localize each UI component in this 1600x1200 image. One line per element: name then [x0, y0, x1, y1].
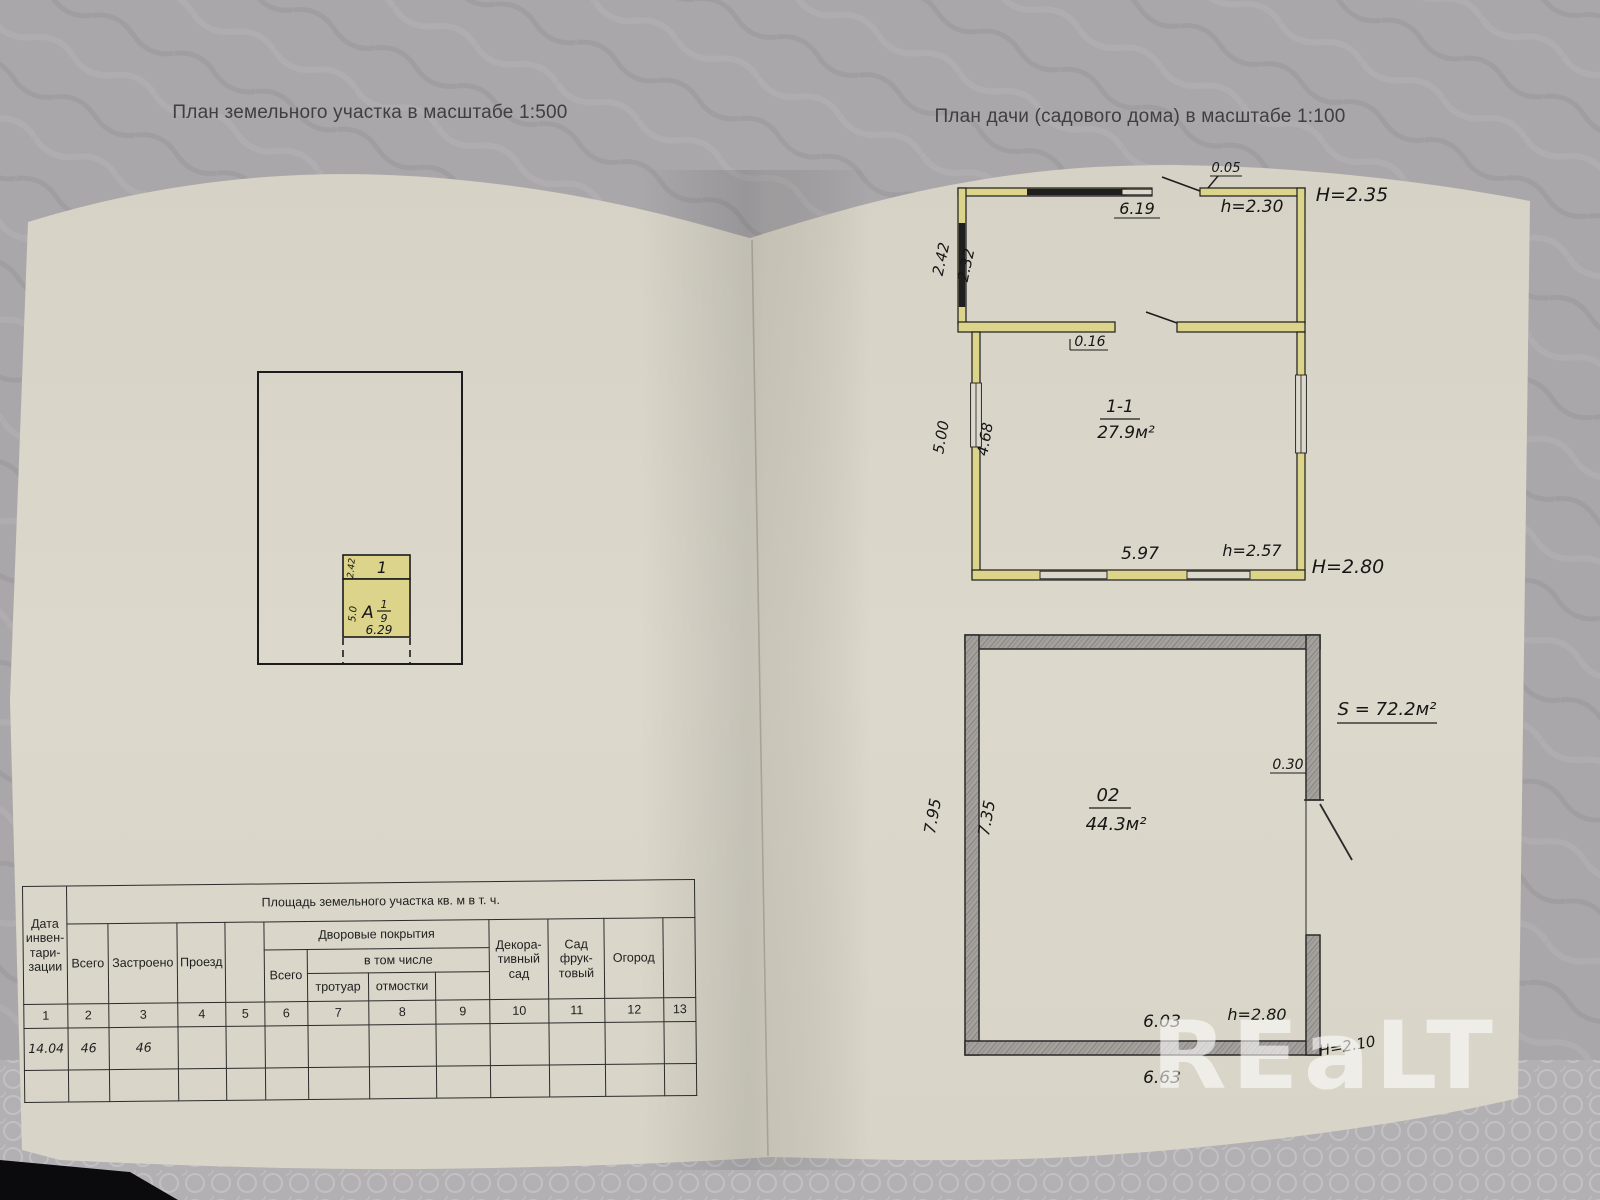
header-garden: Огород: [604, 918, 664, 999]
dim-bottom-width: 5.97: [1121, 544, 1159, 564]
inventory-table-wrap: Дата инвен- тари- зации Площадь земельно…: [22, 886, 695, 1103]
cell-empty: [549, 1064, 605, 1097]
g-dim-side-out: 7.95: [920, 797, 945, 835]
dim-top-width: 6.19: [1119, 199, 1155, 218]
col-num: 3: [109, 1003, 178, 1028]
data-row: 14.04 46 46: [24, 1021, 697, 1070]
header-drive: Проезд: [177, 922, 226, 1002]
header-decorative: Декора- тивный сад: [489, 919, 549, 1000]
header-including: в том числе: [307, 948, 489, 974]
wall-top-right: [1200, 188, 1305, 196]
cell-empty: [369, 1024, 436, 1067]
offset-leader: [1208, 176, 1218, 188]
g-room-area: 44.3м²: [1086, 814, 1147, 835]
room-area: 27.9м²: [1097, 423, 1155, 443]
dim-veranda-out: 2.42: [929, 241, 954, 277]
top-wall-shaded-segment: [1027, 189, 1127, 195]
dim-H-veranda: H=2.35: [1316, 184, 1389, 206]
header-apron: отмостки: [368, 972, 435, 1001]
cell-empty: [490, 1023, 549, 1066]
cell-empty: [68, 1070, 109, 1102]
cell-empty: [265, 1026, 308, 1068]
cell-empty: [24, 1070, 68, 1102]
cell-empty: [109, 1069, 178, 1102]
col-num: 7: [308, 1001, 369, 1026]
room-right-wall: [1297, 332, 1305, 578]
window-bottom-wall-1: [1040, 571, 1107, 579]
header-built: Застроено: [108, 923, 178, 1004]
cell-empty: [605, 1064, 664, 1097]
room-bottom-wall: [972, 570, 1305, 580]
col-num: 12: [605, 998, 664, 1023]
cell-empty: [265, 1068, 308, 1100]
g-total-area: S = 72.2м²: [1338, 699, 1437, 720]
cell-empty: [549, 1022, 605, 1065]
realt-watermark: REaLT: [1151, 1002, 1498, 1111]
building-litera-label: А: [361, 603, 374, 623]
dim-offset: 0.05: [1212, 161, 1241, 176]
header-col9-empty: [435, 972, 489, 1001]
veranda-right-wall: [1297, 188, 1305, 324]
g-top-wall: [965, 635, 1320, 649]
dim-inner-door: 0.16: [1074, 334, 1105, 350]
inventory-table: Дата инвен- тари- зации Площадь земельно…: [22, 879, 697, 1103]
cell-empty: [178, 1026, 226, 1069]
col-num: 5: [226, 1002, 265, 1026]
header-yard-total: Всего: [264, 950, 308, 1002]
building-depth-label: 5.0: [347, 606, 359, 623]
g-inner-outline: [979, 649, 1306, 1041]
cell-empty: [308, 1067, 369, 1100]
g-door-swing: [1320, 804, 1352, 860]
building-number-label: 1: [377, 558, 387, 577]
cell-empty: [605, 1022, 664, 1065]
cell-empty: [490, 1065, 549, 1098]
dim-h-room: h=2.57: [1222, 541, 1282, 560]
col-num: 9: [436, 1000, 490, 1025]
header-orchard: Сад фрук- товый: [548, 918, 605, 999]
divider-wall-right: [1177, 322, 1305, 332]
cell-date: 14.04: [24, 1028, 68, 1070]
cell-empty: [664, 1021, 697, 1063]
header-date: Дата инвен- тари- зации: [23, 886, 68, 1004]
col-num: 6: [265, 1002, 308, 1026]
cell-empty: [664, 1063, 696, 1095]
window-bottom-wall-2: [1187, 571, 1250, 579]
g-room-number: 02: [1097, 785, 1120, 806]
header-total: Всего: [67, 924, 109, 1004]
col-num: 4: [178, 1002, 226, 1027]
divider-wall-left: [958, 322, 1115, 332]
window-top-wall: [1122, 189, 1152, 195]
header-sidewalk: тротуар: [307, 973, 368, 1002]
header-col5-empty: [225, 922, 265, 1002]
cell-empty: [436, 1024, 490, 1067]
room-number: 1-1: [1106, 397, 1134, 417]
dim-side-out: 5.00: [929, 419, 953, 455]
cell-empty: [226, 1068, 265, 1100]
dim-H-room: H=2.80: [1312, 556, 1385, 578]
building-width-label: 6.29: [366, 623, 393, 637]
col-num: 10: [490, 999, 549, 1024]
cell-empty: [436, 1066, 490, 1099]
g-dim-door: 0.30: [1272, 757, 1303, 773]
header-yard: Дворовые покрытия: [264, 920, 489, 950]
veranda-width-label: 2.42: [346, 557, 358, 578]
cell-empty: [226, 1026, 265, 1068]
col-num: 13: [664, 997, 696, 1021]
storeys-numerator: 1: [381, 598, 388, 611]
cell-built: 46: [109, 1027, 178, 1070]
entry-door-swing: [1162, 177, 1200, 191]
header-area-title: Площадь земельного участка кв. м в т. ч.: [67, 879, 695, 924]
col-num: 8: [369, 1000, 436, 1025]
col-num: 1: [24, 1004, 68, 1028]
g-left-wall: [965, 635, 979, 1055]
col-num: 2: [68, 1004, 109, 1028]
site-plan-title: План земельного участка в масштабе 1:500: [160, 102, 580, 124]
cell-total: 46: [68, 1028, 109, 1070]
photo-of-inventory-document: План земельного участка в масштабе 1:500…: [0, 0, 1600, 1200]
floor-plan-1: 6.19 0.05 h=2.30 H=2.35 2.42 2.32 0.16 1…: [900, 148, 1440, 628]
site-plan-drawing: 1 2.42 А 1 9 5.0 6.29: [180, 340, 620, 740]
header-col13-empty: [663, 917, 696, 997]
inner-door-swing: [1146, 312, 1177, 323]
house-plan-title: План дачи (садового дома) в масштабе 1:1…: [930, 106, 1350, 128]
cell-empty: [369, 1066, 436, 1099]
cell-empty: [178, 1068, 226, 1101]
dim-h-veranda: h=2.30: [1221, 197, 1284, 217]
col-num: 11: [549, 998, 605, 1023]
cell-empty: [308, 1025, 369, 1068]
g-right-wall-upper: [1306, 635, 1320, 800]
empty-row: [24, 1063, 696, 1102]
